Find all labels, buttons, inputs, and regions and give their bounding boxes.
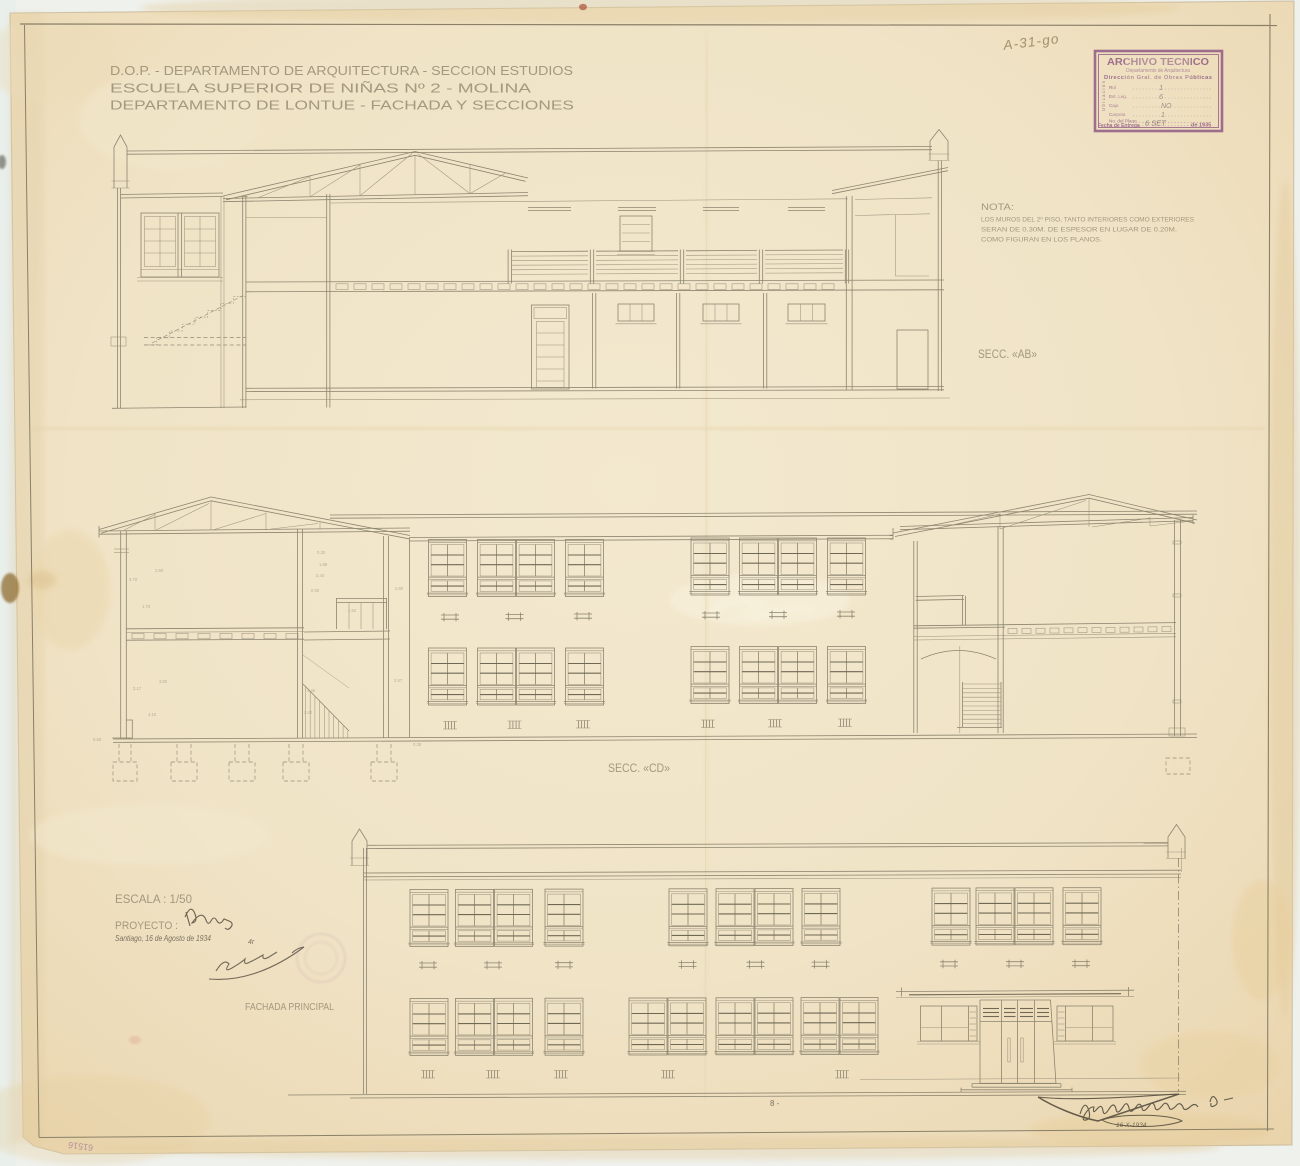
svg-text:1.88: 1.88 bbox=[319, 562, 328, 567]
svg-text:FACHADA PRINCIPAL: FACHADA PRINCIPAL bbox=[245, 1001, 334, 1013]
svg-text:Santiago, 16 de Agosto de 1934: Santiago, 16 de Agosto de 1934 bbox=[115, 934, 211, 943]
svg-text:2.80: 2.80 bbox=[395, 586, 404, 591]
svg-text:ESCUELA SUPERIOR DE NIÑAS Nº 2: ESCUELA SUPERIOR DE NIÑAS Nº 2 - MOLINA bbox=[110, 81, 531, 96]
svg-text:D.O.P. - DEPARTAMENTO DE ARQUI: D.O.P. - DEPARTAMENTO DE ARQUITECTURA - … bbox=[110, 63, 573, 78]
svg-text:16-X-1934: 16-X-1934 bbox=[1116, 1122, 1147, 1129]
svg-text:de 1935: de 1935 bbox=[1191, 123, 1211, 129]
svg-text:8 -: 8 - bbox=[770, 1099, 780, 1108]
svg-text:PROYECTO :: PROYECTO : bbox=[115, 920, 178, 932]
svg-text:0.50: 0.50 bbox=[93, 737, 102, 742]
svg-text:DEPARTAMENTO DE LONTUE - FAC: DEPARTAMENTO DE LONTUE - FACHADA Y SECCI… bbox=[110, 98, 574, 113]
svg-text:2.97: 2.97 bbox=[394, 678, 403, 683]
svg-text:3.17: 3.17 bbox=[133, 686, 142, 691]
svg-text:Fecha de Entrega: Fecha de Entrega bbox=[1098, 123, 1140, 129]
svg-text:2.80: 2.80 bbox=[155, 568, 164, 573]
svg-text:0.90: 0.90 bbox=[311, 588, 320, 593]
svg-text:4.10: 4.10 bbox=[148, 712, 157, 717]
svg-text:ESCALA : 1/50: ESCALA : 1/50 bbox=[115, 892, 192, 906]
svg-text:LOS MUROS DEL 2º PISO, TANTO I: LOS MUROS DEL 2º PISO, TANTO INTERIORES … bbox=[981, 217, 1194, 224]
svg-text:SERAN DE 0.30M. DE ESPESOR EN: SERAN DE 0.30M. DE ESPESOR EN LUGAR DE 0… bbox=[981, 227, 1177, 234]
svg-text:6 SET: 6 SET bbox=[1145, 119, 1167, 128]
svg-text:SECC. «AB»: SECC. «AB» bbox=[978, 347, 1037, 361]
svg-text:Ubicación: Ubicación bbox=[1101, 80, 1106, 111]
svg-text:COMO FIGURAN EN LOS PLANOS.: COMO FIGURAN EN LOS PLANOS. bbox=[981, 237, 1102, 244]
svg-text:0.38: 0.38 bbox=[413, 742, 422, 747]
svg-text:3.80: 3.80 bbox=[159, 679, 168, 684]
svg-text:1.52: 1.52 bbox=[348, 608, 357, 613]
svg-text:2.44: 2.44 bbox=[316, 573, 325, 578]
svg-text:3.70: 3.70 bbox=[129, 577, 138, 582]
svg-text:SECC. «CD»: SECC. «CD» bbox=[608, 761, 670, 775]
svg-text:4r: 4r bbox=[248, 939, 255, 946]
svg-text:0.30: 0.30 bbox=[317, 550, 326, 555]
svg-text:NOTA:: NOTA: bbox=[981, 202, 1014, 213]
svg-text:1.70: 1.70 bbox=[142, 604, 151, 609]
